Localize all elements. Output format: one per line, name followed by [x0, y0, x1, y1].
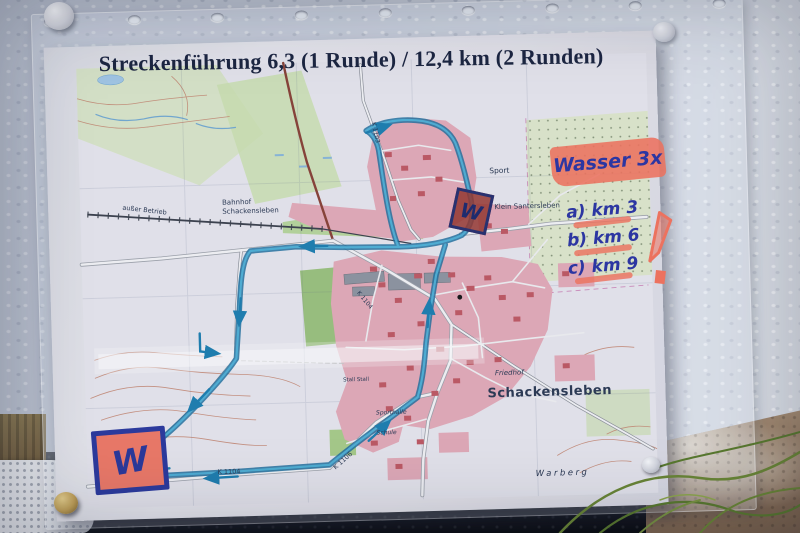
label-sporthalle: Sporthalle: [376, 409, 407, 417]
wasser-text: Wasser 3x: [553, 147, 664, 178]
water-station-marker-bottom: W: [91, 426, 170, 496]
punch-hole: [462, 6, 475, 15]
label-road-k1104: K 1104: [217, 467, 240, 476]
topographic-map: Bahnhof Schackensleben Klein Santerslebe…: [76, 53, 658, 509]
label-stall: Stall Stall: [343, 377, 370, 384]
punch-hole: [545, 3, 558, 12]
route-map-paper: Streckenführung 6,3 (1 Runde) / 12,4 km …: [44, 31, 669, 522]
label-sport: Sport: [489, 166, 509, 176]
label-friedhof: Friedhof: [495, 368, 526, 377]
label-bahnhof: Bahnhof: [222, 198, 252, 207]
pushpin-bottom-right: [642, 457, 660, 473]
label-schule: Schule: [376, 429, 397, 437]
pushpin-bottom-left: [54, 492, 78, 514]
km-item-b: b) km 6: [566, 225, 640, 256]
pushpin-top-right: [653, 22, 675, 42]
punch-hole: [629, 1, 642, 10]
pinned-sheet: Streckenführung 6,3 (1 Runde) / 12,4 km …: [35, 10, 753, 529]
punch-hole: [295, 10, 308, 19]
w-top-text: W: [458, 197, 485, 225]
punch-hole: [127, 15, 140, 24]
pushpin-top-left: [44, 2, 74, 30]
photo-scene: Streckenführung 6,3 (1 Runde) / 12,4 km …: [0, 0, 800, 533]
punch-hole: [378, 8, 391, 17]
punch-hole: [211, 13, 224, 22]
punch-hole: [713, 0, 726, 8]
km-item-a: a) km 3: [566, 197, 640, 228]
w-bottom-text: W: [109, 438, 152, 483]
label-bahnhof-2: Schackensleben: [222, 206, 279, 216]
label-warberg: Warberg: [536, 468, 590, 479]
pink-exclamation-mark: [644, 208, 678, 295]
km-checkpoint-list: a) km 3 b) km 6 c) km 9: [566, 199, 641, 285]
km-item-c: c) km 9: [567, 253, 641, 284]
